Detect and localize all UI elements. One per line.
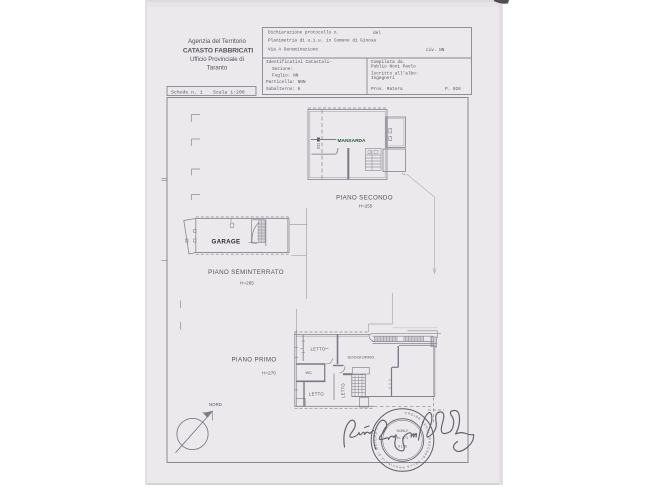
svg-text:Foglio: NN: Foglio: NN [272,74,299,79]
svg-text:H=255: H=255 [359,204,373,209]
svg-text:Prov. Matera: Prov. Matera [371,87,403,92]
svg-text:Taranto: Taranto [207,65,228,72]
svg-text:Subalterno: 6: Subalterno: 6 [266,87,301,92]
svg-text:Schede n. 1: Schede n. 1 [171,90,203,96]
svg-text:PIANO PRIMO: PIANO PRIMO [231,357,276,364]
svg-text:PIANO SEMINTERRATO: PIANO SEMINTERRATO [208,269,284,276]
svg-text:GARAGE: GARAGE [212,238,241,245]
svg-text:PIANO SECONDO: PIANO SECONDO [336,195,393,202]
svg-text:LETTO: LETTO [341,383,346,398]
svg-text:Dichiarazione protocollo n.: Dichiarazione protocollo n. [268,31,339,36]
svg-text:MANSARDA: MANSARDA [338,138,367,144]
svg-text:9 1 86: 9 1 86 [398,445,407,449]
svg-text:NOBILE: NOBILE [397,429,409,433]
svg-text:H=265: H=265 [240,281,254,286]
svg-text:Planimetria di u.i.u. in Comun: Planimetria di u.i.u. in Comune di Ginos… [268,39,376,44]
svg-text:Via A Denominazione: Via A Denominazione [268,48,318,53]
svg-text:Particella: NNN: Particella: NNN [266,80,306,85]
svg-text:Publio Novi Paolo: Publio Novi Paolo [371,64,416,69]
svg-text:SOGGIORNO: SOGGIORNO [348,355,375,360]
svg-text:Scala 1:200: Scala 1:200 [213,90,245,96]
svg-text:Agenzia del Territorio: Agenzia del Territorio [188,38,247,45]
svg-text:CATASTO FABBRICATI: CATASTO FABBRICATI [183,48,254,55]
svg-text:NORD: NORD [209,402,222,407]
svg-text:Sezione:: Sezione: [272,67,293,72]
svg-text:Ingegneri: Ingegneri [371,76,395,81]
svg-text:civ. NN: civ. NN [426,48,445,53]
svg-text:WC: WC [306,371,313,375]
svg-text:Ufficio Provinciale di: Ufficio Provinciale di [190,57,244,63]
svg-text:LETTO: LETTO [311,347,326,352]
svg-text:LETTO: LETTO [309,392,324,397]
svg-text:H=270: H=270 [262,371,276,376]
svg-text:Identificativi Catastali-: Identificativi Catastali- [266,60,332,65]
svg-text:P. 026: P. 026 [445,87,461,92]
svg-text:del: del [373,31,381,36]
